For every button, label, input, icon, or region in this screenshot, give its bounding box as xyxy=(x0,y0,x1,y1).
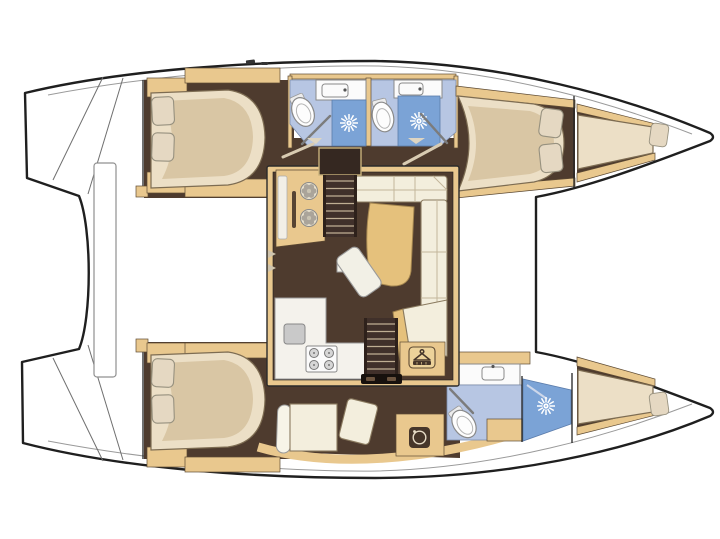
stairs-to-port-hull xyxy=(319,148,361,237)
floorplan-image xyxy=(0,0,720,539)
galley-unit xyxy=(276,170,325,247)
washing-machine-icon xyxy=(409,427,430,448)
aft-platform-beam xyxy=(94,163,116,377)
pillow xyxy=(539,143,564,173)
pillow xyxy=(649,123,670,148)
settee-seat xyxy=(290,404,337,451)
burner-icon xyxy=(301,210,318,227)
salon xyxy=(267,148,459,386)
port-aft-berth xyxy=(151,90,265,188)
sink-icon xyxy=(482,367,504,380)
catamaran-floorplan xyxy=(0,0,720,539)
pillow xyxy=(151,358,174,387)
port-aft-shower xyxy=(332,100,366,146)
stairs-to-starboard-hull xyxy=(361,318,402,384)
galley-appliance xyxy=(284,324,305,344)
stove-icon xyxy=(306,346,337,372)
port-bathrooms xyxy=(286,74,458,148)
pillow xyxy=(152,133,175,162)
pillow xyxy=(538,108,564,139)
pillow xyxy=(152,395,175,424)
burner-icon xyxy=(301,183,318,200)
pillow xyxy=(151,96,174,125)
stbd-aft-berth xyxy=(151,352,265,450)
wardrobe xyxy=(400,342,445,376)
port-fwd-cabin xyxy=(456,86,575,198)
pillow xyxy=(649,392,670,417)
